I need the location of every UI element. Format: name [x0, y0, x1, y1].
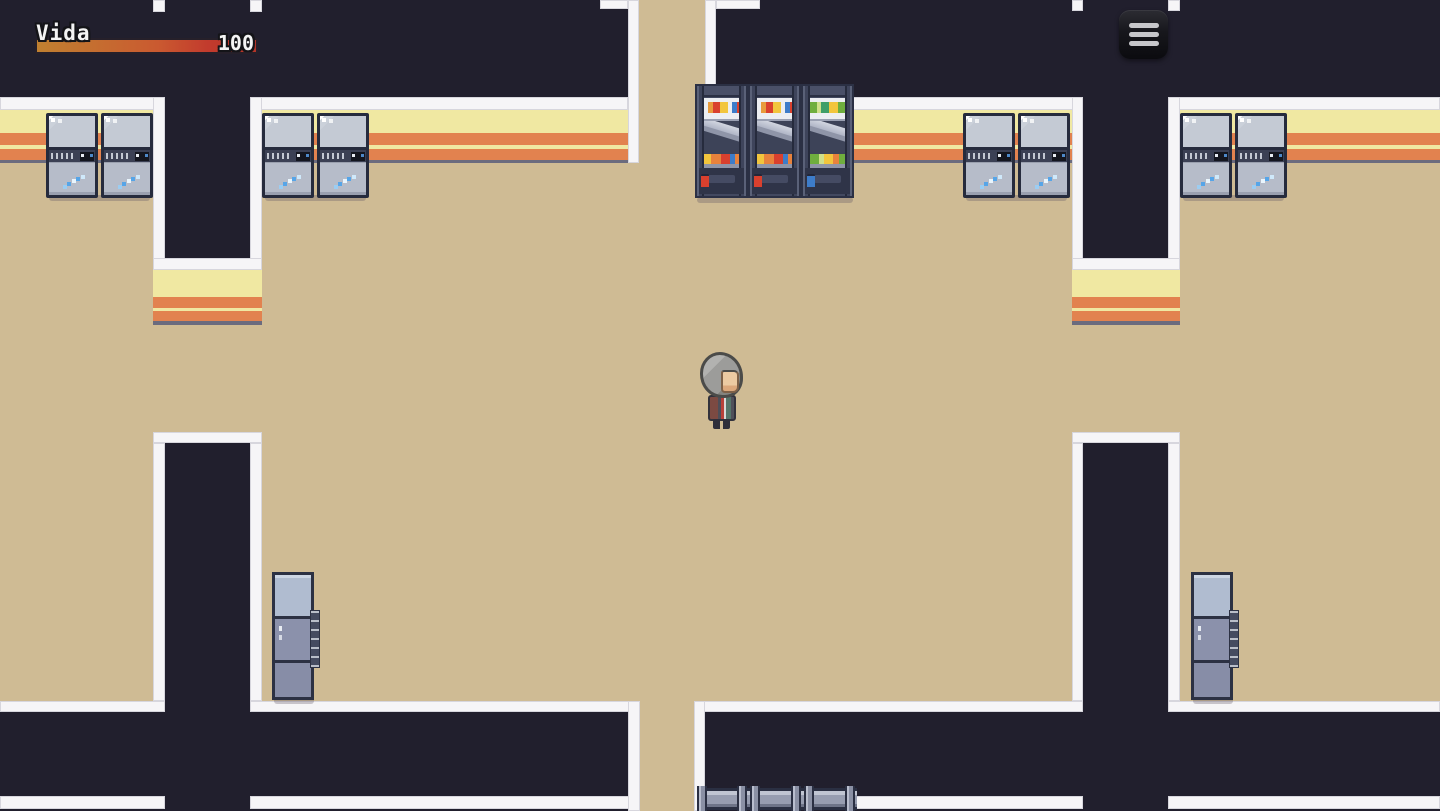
locker-vent	[1183, 150, 1229, 162]
vent-lines	[51, 153, 75, 159]
player-character	[700, 352, 744, 430]
wall-trim	[153, 432, 262, 443]
pipe-flange	[697, 786, 707, 811]
locker-vent	[49, 150, 95, 162]
wall-trim	[1072, 443, 1083, 701]
wall-trim	[153, 97, 165, 270]
wall-trim	[628, 701, 640, 811]
locker	[317, 113, 369, 198]
wall-trim	[0, 796, 165, 809]
sparkle-icon	[343, 179, 347, 183]
locker-vent	[966, 150, 1012, 162]
pipe-flange	[750, 786, 760, 811]
wall-trim	[628, 0, 639, 163]
vent-label	[1214, 152, 1228, 161]
side-vent	[310, 610, 320, 668]
locker-bottom-door	[275, 663, 311, 697]
vending-machine[interactable]	[695, 84, 748, 198]
wall-trim-cap	[153, 0, 165, 12]
locker-bottom-door	[1194, 663, 1230, 697]
locker	[1018, 113, 1070, 198]
locker-vent	[1021, 150, 1067, 162]
player-legs	[713, 419, 730, 429]
vent-label	[1269, 152, 1283, 161]
vent-lines	[1023, 153, 1047, 159]
side-vent	[1229, 610, 1239, 668]
pipe-flange	[845, 786, 855, 811]
machine-header	[757, 86, 792, 97]
machine-shelf	[757, 113, 792, 121]
locker-bottom-door	[1238, 162, 1284, 195]
player-body	[708, 395, 736, 421]
pipe-flange	[791, 786, 801, 811]
machine-banner	[704, 154, 739, 164]
locker-top-door	[49, 116, 95, 150]
locker-pair[interactable]	[1180, 113, 1287, 198]
locker-bottom-door	[49, 162, 95, 195]
game-viewport[interactable]: Vida 100	[0, 0, 1440, 811]
wall-trim	[694, 701, 1083, 712]
locker-middle-door	[275, 619, 311, 663]
vent-lines	[267, 153, 291, 159]
locker	[1235, 113, 1287, 198]
wall-trim	[1168, 443, 1180, 701]
machine-window	[757, 121, 792, 154]
sparkle-icon	[1206, 179, 1210, 183]
locker-top-door	[1183, 116, 1229, 150]
health-hud: Vida 100	[34, 20, 264, 60]
sparkle-icon	[1261, 179, 1265, 183]
locker	[262, 113, 314, 198]
wall-trim	[0, 701, 165, 712]
locker-bottom-door	[1021, 162, 1067, 195]
sparkle-icon	[127, 179, 131, 183]
wall-trim	[250, 97, 628, 110]
corridor-bottom	[640, 700, 694, 811]
wall-trim	[1072, 258, 1180, 270]
locker-middle-door	[1194, 619, 1230, 663]
sparkle-icon	[288, 179, 292, 183]
wall-face-striped	[153, 270, 262, 325]
locker-top-door	[1194, 575, 1230, 619]
vent-label	[351, 152, 365, 161]
sparkle-icon	[989, 179, 993, 183]
wall-trim	[250, 796, 640, 809]
wall-trim	[1072, 432, 1180, 443]
vent-lines	[968, 153, 992, 159]
menu-button[interactable]	[1119, 10, 1168, 59]
product-row	[757, 102, 792, 113]
locker-top-door	[1238, 116, 1284, 150]
locker-top-door	[320, 116, 366, 150]
locker-bottom-door	[1183, 162, 1229, 195]
wall-trim	[153, 443, 165, 701]
machine-shelf	[704, 113, 739, 121]
locker-bottom-door	[320, 162, 366, 195]
product-row	[810, 102, 845, 113]
locker-top-door	[1021, 116, 1067, 150]
locker-top-door	[265, 116, 311, 150]
wall-top-right	[705, 0, 1440, 97]
pipe-flange	[737, 786, 747, 811]
locker-bottom-door	[265, 162, 311, 195]
wall-trim	[250, 443, 262, 701]
locker-pair[interactable]	[262, 113, 369, 198]
locker-pair[interactable]	[46, 113, 153, 198]
wall-pillar-lower-right	[1083, 443, 1168, 811]
locker	[963, 113, 1015, 198]
locker-vent	[1238, 150, 1284, 162]
wall-trim	[0, 97, 165, 110]
player-face	[721, 370, 739, 393]
locker	[46, 113, 98, 198]
wall-face-striped	[1072, 270, 1180, 325]
wall-trim	[1168, 796, 1440, 809]
health-label: Vida	[36, 21, 91, 45]
vent-lines	[1185, 153, 1209, 159]
locker-top-door	[104, 116, 150, 150]
product-row	[704, 102, 739, 113]
sparkle-icon	[72, 179, 76, 183]
machine-header	[810, 86, 845, 97]
machine-window	[704, 121, 739, 154]
locker-vent	[104, 150, 150, 162]
wall-trim-cap	[1072, 0, 1083, 11]
locker	[101, 113, 153, 198]
wall-trim-cap	[600, 0, 628, 9]
sparkle-icon	[1044, 179, 1048, 183]
locker-bottom-door	[104, 162, 150, 195]
wall-trim	[1168, 97, 1180, 270]
machine-window	[810, 121, 845, 154]
bottle	[701, 174, 709, 187]
wall-pillar-lower-left	[165, 443, 250, 811]
locker-vent	[320, 150, 366, 162]
wall-trim	[250, 97, 262, 270]
vent-label	[296, 152, 310, 161]
vent-label	[997, 152, 1011, 161]
bottle	[754, 174, 762, 187]
locker-vent	[265, 150, 311, 162]
locker-bottom-door	[966, 162, 1012, 195]
tall-locker[interactable]	[1191, 572, 1233, 700]
hamburger-menu-icon	[1129, 41, 1159, 46]
wall-trim-cap	[716, 0, 760, 9]
locker	[1180, 113, 1232, 198]
wall-trim	[1168, 97, 1440, 110]
vent-lines	[322, 153, 346, 159]
vending-machine[interactable]	[801, 84, 854, 198]
vent-label	[80, 152, 94, 161]
machine-header	[704, 86, 739, 97]
locker-top-door	[275, 575, 311, 619]
health-value: 100	[218, 31, 254, 55]
machine-banner	[810, 154, 845, 164]
bottle	[807, 174, 815, 187]
vent-lines	[106, 153, 130, 159]
locker-top-door	[966, 116, 1012, 150]
wall-pipe	[697, 788, 857, 810]
vending-machine[interactable]	[748, 84, 801, 198]
wall-trim-cap	[250, 0, 262, 12]
vent-label	[135, 152, 149, 161]
pipe-flange	[804, 786, 814, 811]
wall-trim-cap	[1168, 0, 1180, 11]
tall-locker[interactable]	[272, 572, 314, 700]
vent-label	[1052, 152, 1066, 161]
wall-trim	[1072, 97, 1083, 270]
machine-banner	[757, 154, 792, 164]
wall-trim	[153, 258, 262, 270]
hamburger-menu-icon	[1129, 32, 1159, 37]
locker-pair[interactable]	[963, 113, 1070, 198]
vent-lines	[1240, 153, 1264, 159]
machine-shelf	[810, 113, 845, 121]
hamburger-menu-icon	[1129, 23, 1159, 28]
